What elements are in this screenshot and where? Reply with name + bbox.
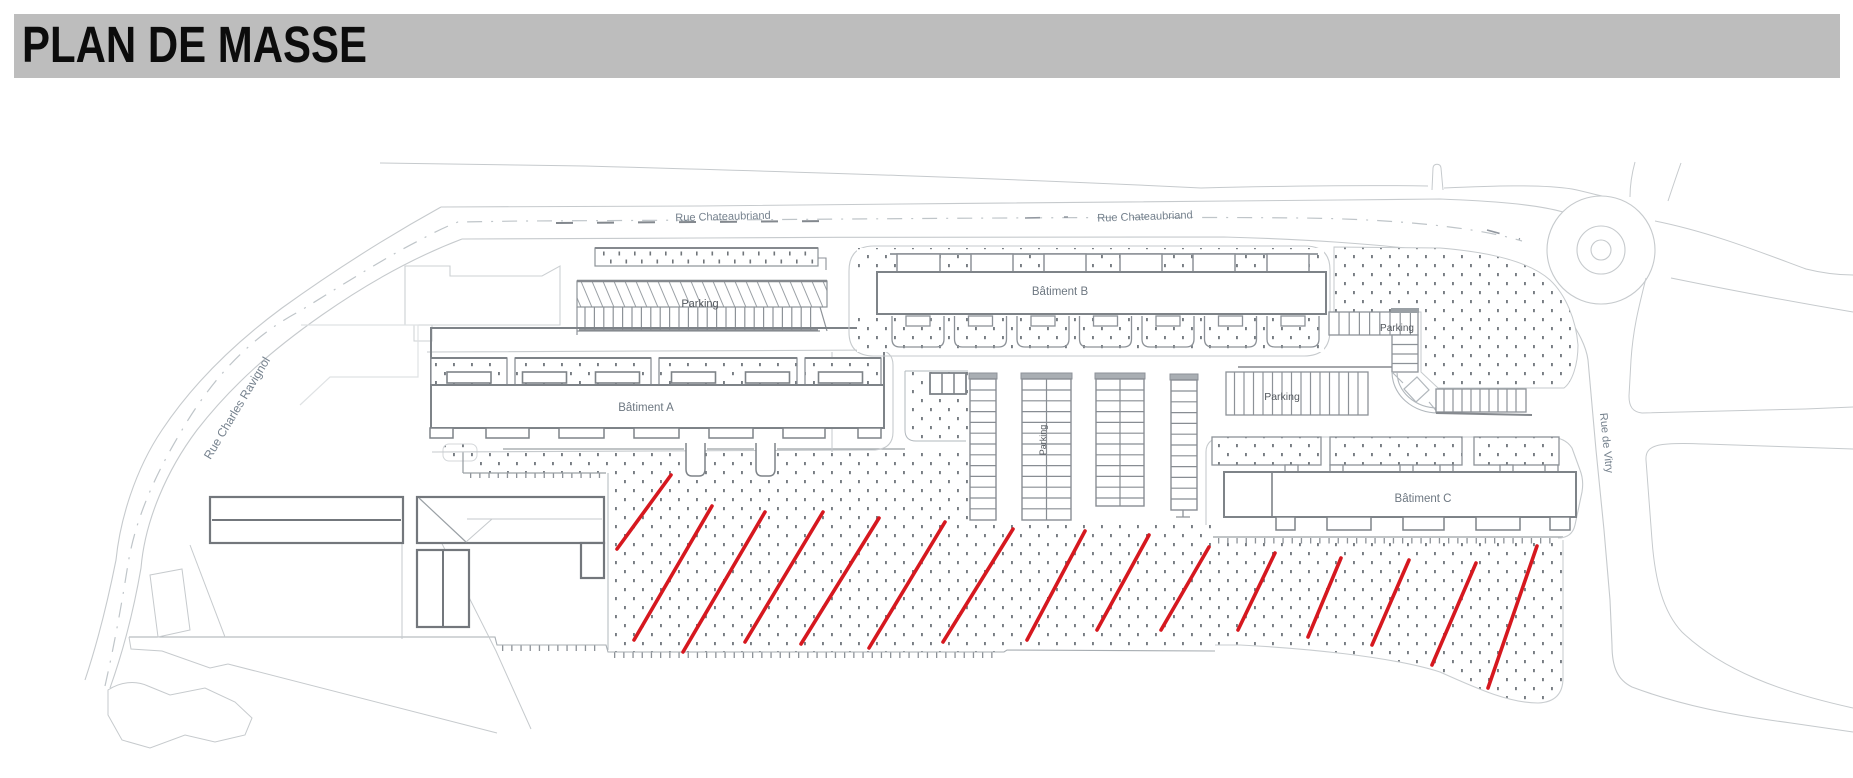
svg-text:Rue Chateaubriand: Rue Chateaubriand [675, 210, 771, 224]
svg-text:Parking: Parking [1380, 323, 1414, 334]
svg-text:Parking: Parking [681, 298, 718, 310]
svg-text:Parking: Parking [1038, 425, 1048, 456]
svg-text:Parking: Parking [1264, 391, 1300, 403]
svg-text:PLAN DE MASSE: PLAN DE MASSE [22, 16, 367, 73]
svg-text:Bâtiment C: Bâtiment C [1395, 493, 1452, 505]
svg-text:Bâtiment A: Bâtiment A [618, 402, 674, 414]
svg-text:Bâtiment B: Bâtiment B [1032, 286, 1089, 298]
